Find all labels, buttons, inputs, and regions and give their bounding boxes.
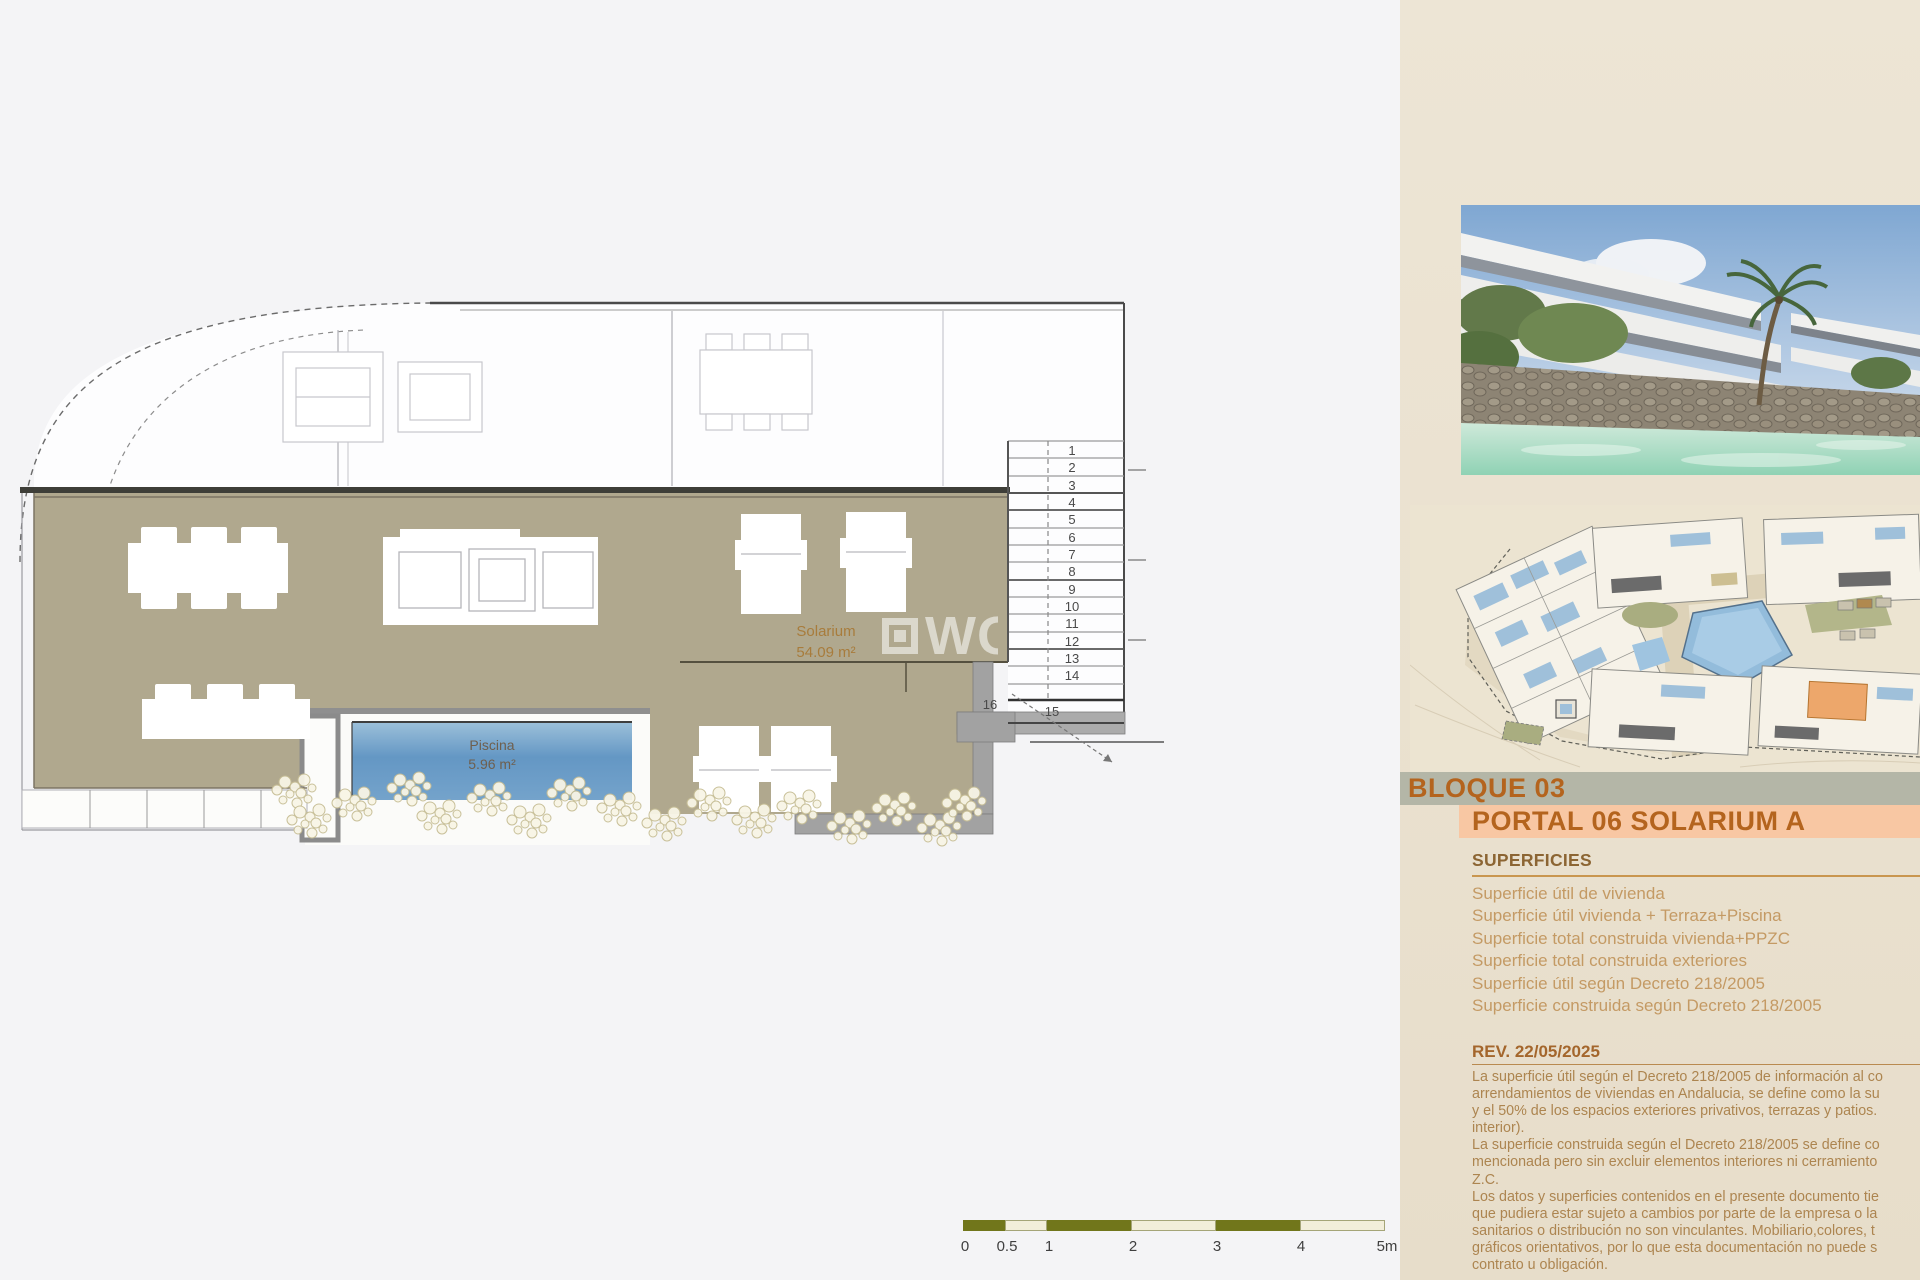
watermark-logo-icon — [882, 618, 918, 654]
legal-text-line: La superficie útil según el Decreto 218/… — [1472, 1069, 1920, 1086]
dining-set — [128, 527, 288, 609]
scale-label: 0 — [961, 1238, 969, 1255]
green-patch — [1622, 602, 1678, 628]
svg-text:13: 13 — [1065, 651, 1079, 666]
legal-text-line: sanitarios o distribución no son vincula… — [1472, 1223, 1920, 1240]
watermark-text: WG — [925, 609, 998, 663]
sofa-set — [383, 529, 598, 625]
superficies-item: Superficie total construida exteriores — [1472, 950, 1920, 972]
svg-text:6: 6 — [1068, 530, 1075, 545]
scale-bar: 0 0.5 1 2 3 4 5m — [963, 1220, 1393, 1266]
svg-text:9: 9 — [1068, 582, 1075, 597]
site-plan — [1410, 505, 1920, 773]
legal-text-line: contrato u obligación. — [1472, 1257, 1920, 1274]
svg-text:54.09 m²: 54.09 m² — [796, 644, 855, 661]
brochure-page: 1 2 3 4 5 6 7 8 9 10 11 12 13 14 15 16 — [0, 0, 1920, 1280]
legal-text-line: que pudiera estar sujeto a cambios por p… — [1472, 1206, 1920, 1223]
superficies-item: Superficie construida según Decreto 218/… — [1472, 995, 1920, 1017]
small-square — [1556, 700, 1576, 718]
scale-bar-segments — [963, 1220, 1385, 1231]
legal-text-line: La superficie construida según el Decret… — [1472, 1137, 1920, 1154]
svg-text:Piscina: Piscina — [469, 737, 514, 753]
svg-text:3: 3 — [1068, 478, 1075, 493]
svg-text:15: 15 — [1045, 704, 1059, 719]
scale-label: 4 — [1297, 1238, 1305, 1255]
superficies-heading: SUPERFICIES — [1472, 850, 1920, 877]
pool-zone: Piscina 5.96 m² — [302, 708, 650, 845]
legal-text-line: y el 50% de los espacios exteriores priv… — [1472, 1103, 1920, 1120]
svg-text:16: 16 — [983, 697, 997, 712]
bloque-band: BLOQUE 03 — [1400, 772, 1920, 805]
legal-text-line: Z.C. — [1472, 1172, 1920, 1189]
superficies-item: Superficie útil vivienda + Terraza+Pisci… — [1472, 905, 1920, 927]
legal-text-line: interior). — [1472, 1120, 1920, 1137]
lower-table-set — [142, 684, 310, 739]
portal-title: PORTAL 06 SOLARIUM A — [1459, 806, 1806, 837]
revision-heading: REV. 22/05/2025 — [1472, 1042, 1920, 1065]
scale-label: 5m — [1377, 1238, 1398, 1255]
superficies-item: Superficie útil según Decreto 218/2005 — [1472, 973, 1920, 995]
svg-text:14: 14 — [1065, 668, 1079, 683]
portal-band: PORTAL 06 SOLARIUM A — [1459, 805, 1920, 838]
legal-text-line: gráficos orientativos, por lo que esta d… — [1472, 1240, 1920, 1257]
svg-text:12: 12 — [1065, 634, 1079, 649]
svg-text:5: 5 — [1068, 512, 1075, 527]
highlighted-unit — [1808, 681, 1868, 720]
legal-text-line: Los datos y superficies contenidos en el… — [1472, 1189, 1920, 1206]
bloque-title: BLOQUE 03 — [1400, 773, 1566, 804]
svg-text:4: 4 — [1068, 495, 1075, 510]
legal-text-line: mencionada pero sin excluir elementos in… — [1472, 1154, 1920, 1171]
info-panel: BLOQUE 03 PORTAL 06 SOLARIUM A SUPERFICI… — [1400, 0, 1920, 1280]
svg-text:1: 1 — [1068, 443, 1075, 458]
svg-text:2: 2 — [1068, 460, 1075, 475]
scale-label: 3 — [1213, 1238, 1221, 1255]
legal-text-line: arrendamientos de viviendas en Andalucia… — [1472, 1086, 1920, 1103]
planter-row — [22, 788, 307, 828]
svg-text:8: 8 — [1068, 564, 1075, 579]
revision-section: REV. 22/05/2025 La superficie útil según… — [1472, 1042, 1920, 1274]
svg-text:5.96 m²: 5.96 m² — [468, 756, 516, 772]
svg-text:11: 11 — [1065, 616, 1079, 631]
svg-text:Solarium: Solarium — [796, 623, 855, 640]
svg-text:7: 7 — [1068, 547, 1075, 562]
watermark: WG — [882, 600, 998, 672]
superficies-item: Superficie útil de vivienda — [1472, 883, 1920, 905]
scale-label: 2 — [1129, 1238, 1137, 1255]
building-photo — [1461, 205, 1920, 475]
floorplan-drawing: 1 2 3 4 5 6 7 8 9 10 11 12 13 14 15 16 — [0, 0, 1400, 1280]
scale-label: 1 — [1045, 1238, 1053, 1255]
floorplan-area: 1 2 3 4 5 6 7 8 9 10 11 12 13 14 15 16 — [0, 0, 1400, 1280]
superficies-section: SUPERFICIES Superficie útil de vivienda … — [1472, 850, 1920, 1017]
scale-label: 0.5 — [997, 1238, 1018, 1255]
svg-text:10: 10 — [1065, 599, 1079, 614]
superficies-item: Superficie total construida vivienda+PPZ… — [1472, 928, 1920, 950]
facade-wall — [20, 487, 1010, 493]
